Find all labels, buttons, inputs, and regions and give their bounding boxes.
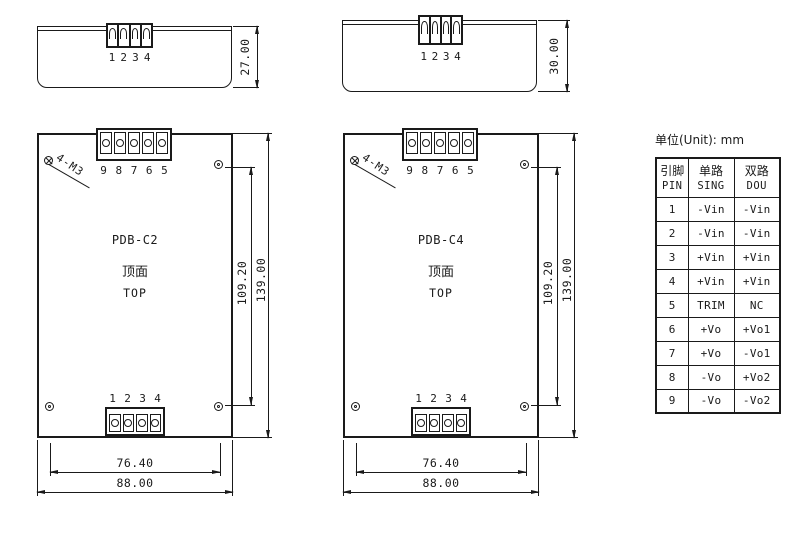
dimension-text-body-width: 88.00: [422, 476, 459, 490]
dimension-line-body-height: [574, 133, 575, 438]
pin-number: 4: [456, 392, 471, 405]
mechanical-drawing-canvas: 1 2 3 4 27.00 1 2 3 4: [0, 0, 797, 536]
wire-clamp-arc: [443, 21, 449, 34]
pin-number: 7: [126, 164, 141, 177]
screw-hole-icon: [116, 139, 124, 147]
top-view-pdb-c2: 9 8 7 6 5 4-M3 PDB-C2 顶面 TOP 1 2 3 4: [37, 133, 233, 438]
dimension-line-height: [257, 26, 258, 88]
pin-table: 引脚 PIN 单路 SING 双路 DOU 1 -Vin: [655, 157, 781, 414]
arrowhead-left-icon: [49, 470, 58, 474]
arrowhead-left-icon: [342, 490, 351, 494]
wire-clamp-arc: [421, 21, 427, 34]
terminal-cell: [406, 132, 418, 154]
terminal-cell: [136, 414, 148, 432]
single-cell: TRIM: [688, 293, 734, 317]
hole-center: [354, 405, 357, 408]
arrowhead-down-icon: [555, 397, 559, 406]
pin-number: 1: [106, 51, 118, 64]
pin-number: 3: [130, 51, 142, 64]
col-header-en: PIN: [657, 180, 688, 193]
arrowhead-up-icon: [555, 166, 559, 175]
terminal-cell: [142, 132, 154, 154]
screw-hole-icon: [102, 139, 110, 147]
single-cell: -Vin: [688, 197, 734, 221]
dimension-line-body-width: [37, 492, 233, 493]
top-pin-numbers: 9 8 7 6 5: [96, 164, 172, 177]
terminal-cell: [114, 132, 126, 154]
hole-center: [217, 163, 220, 166]
mounting-hole-icon: [214, 160, 223, 169]
terminal-cell: [109, 414, 121, 432]
dual-cell: -Vin: [734, 197, 780, 221]
module-name: PDB-C4: [343, 233, 539, 247]
unit-label: 单位(Unit): mm: [655, 131, 787, 148]
wire-clamp-arc: [132, 28, 139, 39]
pin-cell: 2: [656, 221, 688, 245]
table-row: 7 +Vo -Vo1: [656, 341, 780, 365]
terminal-cell: [119, 25, 130, 46]
arrowhead-up-icon: [266, 132, 270, 141]
terminal-block-side: [418, 15, 463, 45]
hole-center: [48, 405, 51, 408]
dimension-line-body-height: [268, 133, 269, 438]
pin-number: 5: [157, 164, 172, 177]
dual-cell: +Vo2: [734, 365, 780, 389]
pin-number: 4: [452, 50, 463, 63]
bottom-pin-numbers: 1 2 3 4: [105, 392, 165, 405]
face-label-cn: 顶面: [343, 261, 539, 280]
screw-hole-icon: [144, 139, 152, 147]
arrowhead-up-icon: [255, 25, 259, 34]
dual-cell: +Vo1: [734, 317, 780, 341]
table-row: 9 -Vo -Vo2: [656, 389, 780, 413]
terminal-cell: [150, 414, 162, 432]
top-pin-numbers: 9 8 7 6 5: [402, 164, 478, 177]
terminal-cell: [123, 414, 135, 432]
screw-hole-icon: [464, 139, 472, 147]
terminal-cell: [131, 25, 142, 46]
col-header-pin: 引脚 PIN: [656, 158, 688, 197]
dimension-line-body-width: [343, 492, 539, 493]
arrowhead-right-icon: [225, 490, 234, 494]
dimension-text-hole-width: 76.40: [116, 456, 153, 470]
table-row: 5 TRIM NC: [656, 293, 780, 317]
mounting-hole-icon: [351, 402, 360, 411]
terminal-cell: [442, 17, 453, 43]
pin-number: 8: [111, 164, 126, 177]
screw-hole-icon: [111, 419, 119, 427]
pin-number: 6: [142, 164, 157, 177]
screw-hole-icon: [422, 139, 430, 147]
extension-line: [232, 440, 233, 496]
pin-number: 3: [441, 392, 456, 405]
single-cell: +Vo: [688, 317, 734, 341]
arrowhead-down-icon: [565, 84, 569, 93]
pin-number: 3: [441, 50, 452, 63]
arrowhead-right-icon: [518, 470, 527, 474]
terminal-cell: [456, 414, 468, 432]
single-cell: +Vo: [688, 341, 734, 365]
pin-cell: 7: [656, 341, 688, 365]
col-header-single: 单路 SING: [688, 158, 734, 197]
dimension-line-hole-span: [557, 167, 558, 405]
bottom-pin-numbers: 1 2 3 4: [411, 392, 471, 405]
terminal-cell: [156, 132, 168, 154]
pin-number: 6: [448, 164, 463, 177]
arrowhead-right-icon: [531, 490, 540, 494]
pin-number: 5: [463, 164, 478, 177]
arrowhead-down-icon: [266, 430, 270, 439]
table-row: 8 -Vo +Vo2: [656, 365, 780, 389]
pin-number: 3: [135, 392, 150, 405]
arrowhead-down-icon: [249, 397, 253, 406]
terminal-cell: [448, 132, 460, 154]
mounting-hole-icon: [520, 402, 529, 411]
dimension-text-side-height: 30.00: [547, 37, 561, 74]
dual-cell: +Vin: [734, 269, 780, 293]
screw-hole-icon: [457, 419, 465, 427]
terminal-block-4pin: [105, 407, 165, 436]
screw-hole-icon: [444, 419, 452, 427]
face-label-cn: 顶面: [37, 261, 233, 280]
pin-number: 4: [141, 51, 153, 64]
single-cell: -Vo: [688, 389, 734, 413]
terminal-cell: [452, 17, 461, 43]
module-name: PDB-C2: [37, 233, 233, 247]
top-view-pdb-c4: 9 8 7 6 5 4-M3 PDB-C4 顶面 TOP 1 2 3 4: [343, 133, 539, 438]
dimension-text-body-height: 139.00: [254, 258, 268, 303]
col-header-cn: 单路: [689, 163, 734, 180]
hole-center: [217, 405, 220, 408]
col-header-cn: 双路: [735, 163, 780, 180]
terminal-cell: [431, 17, 442, 43]
dimension-text-body-height: 139.00: [560, 258, 574, 303]
arrowhead-down-icon: [572, 430, 576, 439]
terminal-block-4pin: [411, 407, 471, 436]
dimension-text-body-width: 88.00: [116, 476, 153, 490]
terminal-block-5pin: [96, 128, 172, 161]
arrowhead-left-icon: [36, 490, 45, 494]
dimension-line-hole-width: [50, 472, 220, 473]
wire-clamp-arc: [109, 28, 116, 39]
dimension-text-hole-span: 109.20: [235, 261, 249, 306]
pin-number: 2: [118, 51, 130, 64]
screw-hole-icon: [408, 139, 416, 147]
face-label-en: TOP: [343, 286, 539, 300]
pin-table-section: 单位(Unit): mm 引脚 PIN 单路 SING 双路 DOU: [655, 131, 787, 414]
col-header-cn: 引脚: [657, 163, 688, 180]
terminal-cell: [429, 414, 441, 432]
table-row: 3 +Vin +Vin: [656, 245, 780, 269]
pin-number: 4: [150, 392, 165, 405]
dual-cell: -Vo2: [734, 389, 780, 413]
dimension-text-side-height: 27.00: [238, 38, 252, 75]
dimension-line-hole-span: [251, 167, 252, 405]
pin-number: 1: [105, 392, 120, 405]
single-cell: -Vin: [688, 221, 734, 245]
hole-center: [523, 405, 526, 408]
side-pin-numbers: 1 2 3 4: [106, 51, 153, 64]
wire-clamp-arc: [120, 28, 127, 39]
arrowhead-up-icon: [249, 166, 253, 175]
header-row: 引脚 PIN 单路 SING 双路 DOU: [656, 158, 780, 197]
pin-cell: 6: [656, 317, 688, 341]
screw-hole-icon: [158, 139, 166, 147]
dual-cell: -Vin: [734, 221, 780, 245]
screw-hole-icon: [138, 419, 146, 427]
terminal-cell: [420, 17, 431, 43]
pin-cell: 3: [656, 245, 688, 269]
pin-cell: 4: [656, 269, 688, 293]
terminal-cell: [100, 132, 112, 154]
terminal-cell: [128, 132, 140, 154]
screw-hole-icon: [124, 419, 132, 427]
screw-hole-icon: [151, 419, 159, 427]
table-row: 6 +Vo +Vo1: [656, 317, 780, 341]
side-pin-numbers: 1 2 3 4: [418, 50, 463, 63]
pin-number: 2: [426, 392, 441, 405]
pin-cell: 1: [656, 197, 688, 221]
pin-cell: 9: [656, 389, 688, 413]
dual-cell: -Vo1: [734, 341, 780, 365]
screw-hole-icon: [417, 419, 425, 427]
terminal-cell: [142, 25, 151, 46]
arrowhead-left-icon: [355, 470, 364, 474]
terminal-block-side: [106, 23, 153, 48]
screw-hole-icon: [450, 139, 458, 147]
dual-cell: +Vin: [734, 245, 780, 269]
pin-number: 2: [120, 392, 135, 405]
col-header-en: DOU: [735, 180, 780, 193]
pin-number: 7: [432, 164, 447, 177]
arrowhead-up-icon: [565, 19, 569, 28]
wire-clamp-arc: [143, 28, 150, 39]
table-row: 4 +Vin +Vin: [656, 269, 780, 293]
screw-hole-icon: [430, 419, 438, 427]
dimension-line-height: [567, 20, 568, 92]
wire-clamp-arc: [432, 21, 438, 34]
pin-number: 1: [418, 50, 429, 63]
arrowhead-right-icon: [212, 470, 221, 474]
hole-center: [523, 163, 526, 166]
extension-line: [343, 440, 344, 496]
arrowhead-down-icon: [255, 80, 259, 89]
dimension-text-hole-width: 76.40: [422, 456, 459, 470]
col-header-dual: 双路 DOU: [734, 158, 780, 197]
terminal-cell: [434, 132, 446, 154]
pin-number: 2: [429, 50, 440, 63]
screw-hole-icon: [130, 139, 138, 147]
extension-line: [37, 440, 38, 496]
single-cell: -Vo: [688, 365, 734, 389]
terminal-cell: [420, 132, 432, 154]
pin-number: 1: [411, 392, 426, 405]
face-label-en: TOP: [37, 286, 233, 300]
terminal-cell: [462, 132, 474, 154]
terminal-cell: [108, 25, 119, 46]
pin-number: 8: [417, 164, 432, 177]
col-header-en: SING: [689, 180, 734, 193]
table-row: 1 -Vin -Vin: [656, 197, 780, 221]
single-cell: +Vin: [688, 245, 734, 269]
dimension-line-hole-width: [356, 472, 526, 473]
single-cell: +Vin: [688, 269, 734, 293]
dimension-text-hole-span: 109.20: [541, 261, 555, 306]
extension-line: [538, 440, 539, 496]
terminal-block-5pin: [402, 128, 478, 161]
pin-cell: 8: [656, 365, 688, 389]
mounting-hole-icon: [520, 160, 529, 169]
dual-cell: NC: [734, 293, 780, 317]
pin-cell: 5: [656, 293, 688, 317]
table-row: 2 -Vin -Vin: [656, 221, 780, 245]
wire-clamp-arc: [453, 21, 459, 34]
arrowhead-up-icon: [572, 132, 576, 141]
mounting-hole-icon: [45, 402, 54, 411]
pin-number: 9: [402, 164, 417, 177]
terminal-cell: [415, 414, 427, 432]
terminal-cell: [442, 414, 454, 432]
pin-number: 9: [96, 164, 111, 177]
mounting-hole-icon: [214, 402, 223, 411]
screw-hole-icon: [436, 139, 444, 147]
